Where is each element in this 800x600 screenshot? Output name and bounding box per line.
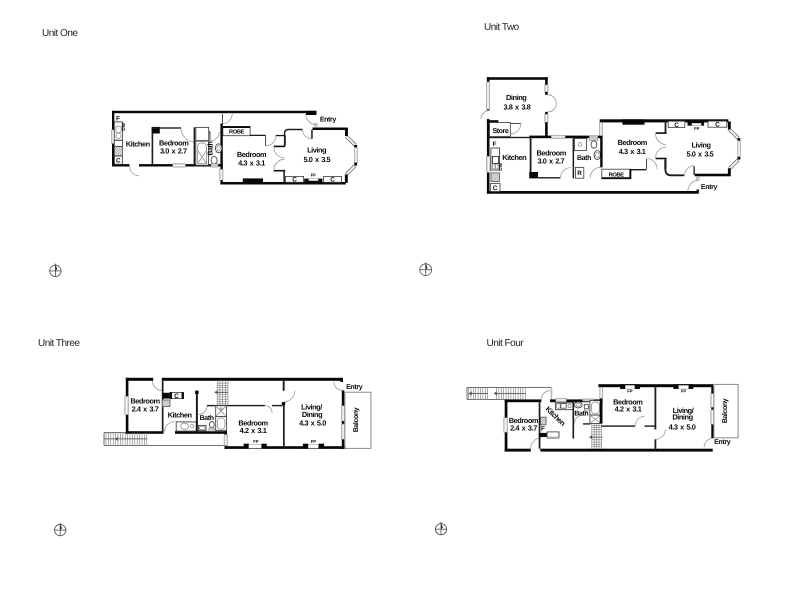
svg-text:Bedroom: Bedroom	[237, 150, 267, 159]
svg-text:5.0 x 3.5: 5.0 x 3.5	[303, 155, 330, 164]
svg-text:C: C	[116, 158, 121, 165]
svg-text:C: C	[715, 122, 720, 129]
svg-text:ROBE: ROBE	[609, 172, 625, 179]
svg-text:4.3 x 5.0: 4.3 x 5.0	[299, 418, 326, 427]
svg-text:4.3 x 5.0: 4.3 x 5.0	[669, 423, 696, 432]
svg-text:F: F	[116, 115, 120, 122]
svg-text:Living: Living	[691, 141, 711, 150]
svg-text:FP: FP	[627, 388, 633, 393]
svg-text:Dining: Dining	[506, 93, 527, 102]
svg-text:Unit Four: Unit Four	[487, 338, 525, 349]
svg-text:Balcony: Balcony	[352, 407, 360, 432]
svg-text:ROBE: ROBE	[229, 129, 245, 136]
svg-text:Store: Store	[492, 128, 508, 135]
svg-text:Bath: Bath	[200, 414, 214, 422]
svg-text:C: C	[174, 393, 179, 400]
svg-text:C: C	[493, 185, 498, 192]
svg-text:Entry: Entry	[714, 439, 731, 446]
svg-text:3.0 x 2.7: 3.0 x 2.7	[160, 147, 187, 156]
svg-text:FP: FP	[311, 439, 317, 444]
svg-text:Kitchen: Kitchen	[168, 410, 193, 419]
svg-text:Unit Two: Unit Two	[484, 22, 520, 33]
svg-text:2.4 x 3.7: 2.4 x 3.7	[132, 405, 159, 414]
svg-text:Unit Three: Unit Three	[38, 338, 80, 349]
svg-text:C: C	[674, 122, 679, 129]
svg-text:FP: FP	[694, 126, 700, 131]
svg-text:Bedroom: Bedroom	[618, 138, 648, 147]
svg-text:Kitchen: Kitchen	[126, 139, 151, 148]
svg-text:Entry: Entry	[701, 184, 718, 191]
svg-text:4.3 x 3.1: 4.3 x 3.1	[238, 159, 265, 168]
svg-text:Balcony: Balcony	[721, 398, 729, 423]
svg-text:4.2 x 3.1: 4.2 x 3.1	[615, 404, 642, 413]
svg-text:C: C	[330, 177, 335, 184]
svg-text:FP: FP	[681, 388, 687, 393]
svg-text:DW: DW	[121, 122, 127, 130]
svg-text:FP: FP	[253, 439, 259, 444]
svg-text:Bath: Bath	[574, 409, 588, 417]
svg-text:5.0 x 3.5: 5.0 x 3.5	[687, 149, 714, 158]
svg-text:DW: DW	[498, 162, 504, 170]
svg-text:Kitchen: Kitchen	[502, 153, 527, 162]
svg-text:Bath: Bath	[207, 142, 215, 156]
svg-text:Unit One: Unit One	[42, 28, 78, 39]
svg-text:2.4 x 3.7: 2.4 x 3.7	[510, 423, 537, 432]
svg-text:Living: Living	[307, 146, 327, 155]
svg-text:FP: FP	[311, 173, 317, 178]
svg-text:Bath: Bath	[577, 154, 591, 162]
svg-text:C: C	[292, 177, 297, 184]
svg-text:F: F	[541, 425, 545, 432]
svg-text:3.8 x 3.8: 3.8 x 3.8	[504, 103, 531, 112]
svg-text:R: R	[577, 170, 582, 177]
svg-text:3.0 x 2.7: 3.0 x 2.7	[537, 157, 564, 166]
svg-text:F: F	[493, 141, 497, 148]
svg-text:Dining: Dining	[672, 413, 693, 422]
svg-text:Entry: Entry	[346, 384, 363, 391]
svg-text:Entry: Entry	[320, 117, 337, 124]
svg-text:4.2 x 3.1: 4.2 x 3.1	[240, 426, 267, 435]
svg-text:4.3 x 3.1: 4.3 x 3.1	[619, 147, 646, 156]
